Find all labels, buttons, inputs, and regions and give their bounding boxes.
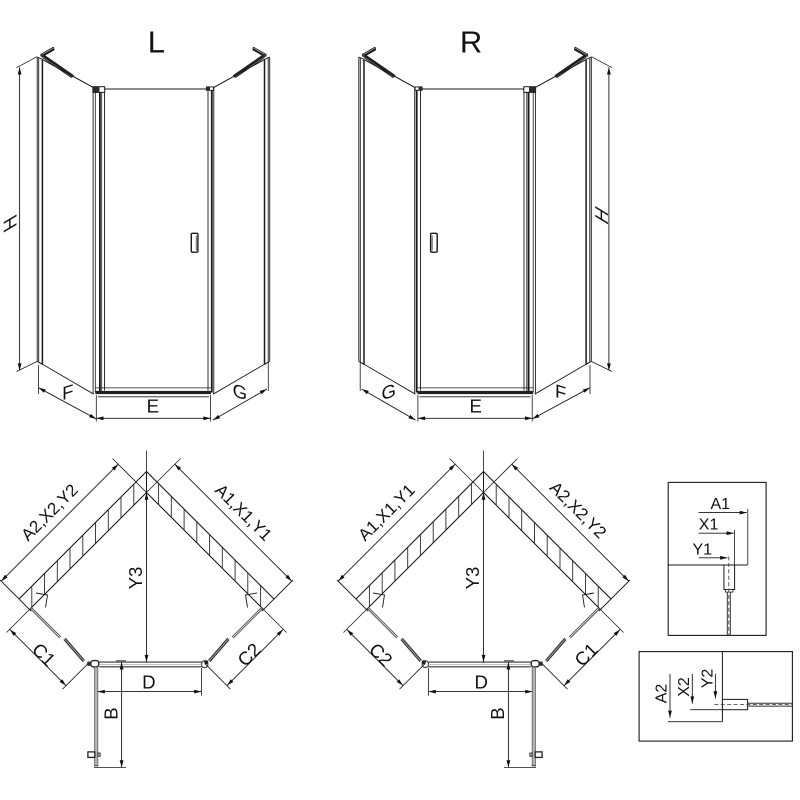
svg-text:E: E — [147, 396, 159, 417]
svg-text:B: B — [100, 707, 121, 719]
svg-text:L: L — [148, 24, 165, 59]
svg-text:Y3: Y3 — [125, 567, 146, 590]
svg-text:D: D — [142, 671, 155, 692]
svg-text:X2: X2 — [676, 677, 693, 697]
svg-text:X1: X1 — [699, 517, 719, 534]
svg-text:Y1: Y1 — [693, 541, 713, 558]
svg-text:A1: A1 — [711, 496, 731, 513]
svg-text:R: R — [460, 24, 482, 59]
svg-text:Y2: Y2 — [700, 669, 717, 689]
svg-text:A2: A2 — [654, 684, 671, 704]
svg-text:E: E — [469, 396, 481, 417]
svg-text:Y3: Y3 — [462, 567, 483, 590]
svg-text:F: F — [555, 381, 566, 405]
svg-text:B: B — [487, 707, 508, 719]
svg-text:D: D — [474, 671, 487, 692]
svg-text:F: F — [62, 381, 73, 405]
